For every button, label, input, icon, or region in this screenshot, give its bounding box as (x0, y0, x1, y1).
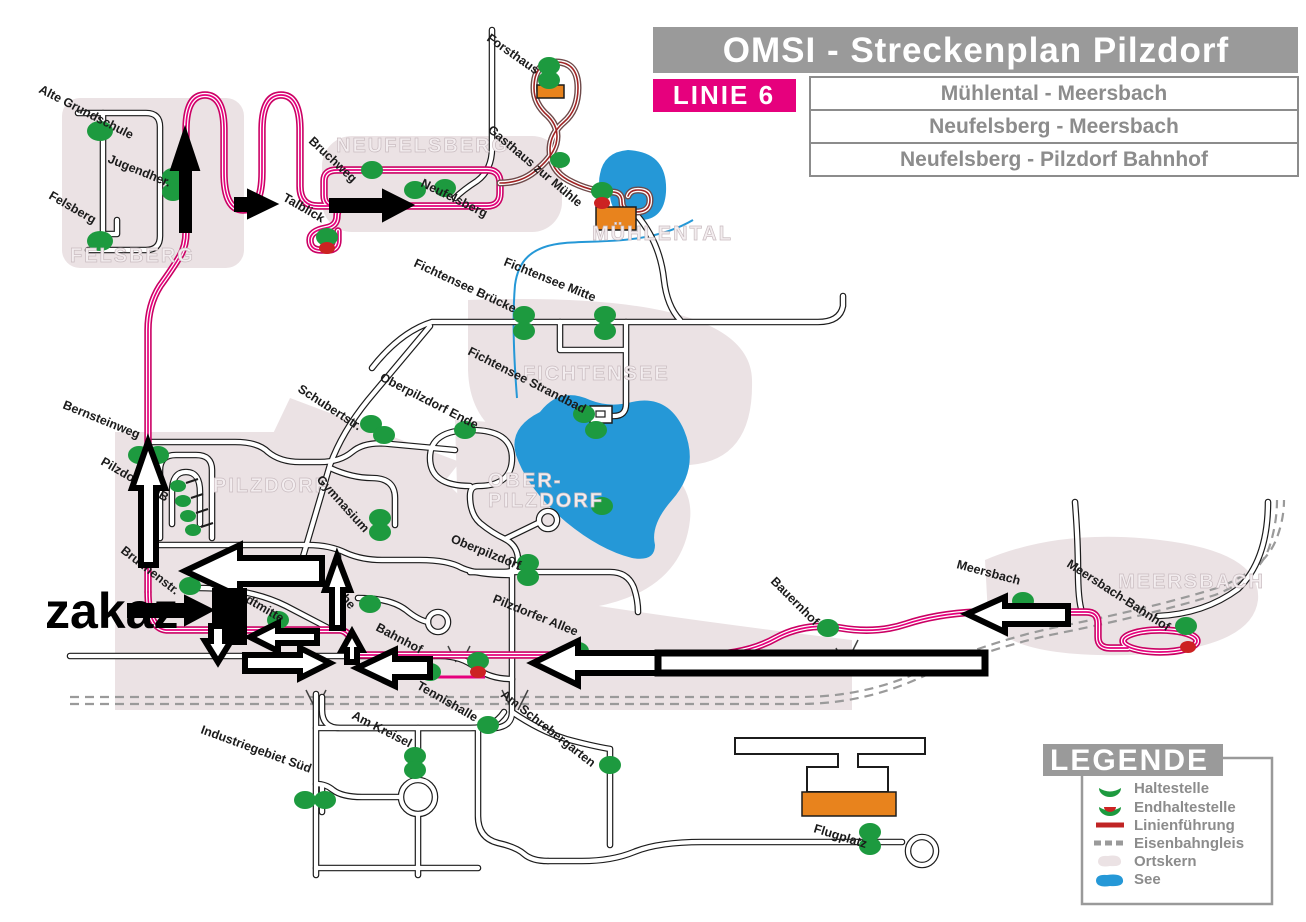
legend-label-haltestelle: Haltestelle (1134, 780, 1209, 797)
flugplatz-runway (735, 738, 925, 792)
ortskern-icon (1098, 856, 1121, 867)
strandbad-hut-window (596, 411, 605, 417)
stop-label-bernsteinweg: Bernsteinweg (61, 398, 142, 442)
stop-marker (404, 761, 426, 779)
stop-marker (517, 568, 539, 586)
stop-marker (599, 756, 621, 774)
flugplatz-terminal (802, 792, 896, 816)
terminal-marker-red (319, 242, 335, 254)
stop-marker (359, 595, 381, 613)
header: OMSI - Streckenplan Pilzdorf LINIE 6 Müh… (653, 27, 1298, 176)
legend: LEGENDE Haltestelle Endhaltestelle Linie… (1043, 744, 1272, 904)
area-label-felsberg: FELSBERG (70, 245, 195, 267)
terminal-marker-red (1180, 641, 1196, 653)
route-name-1: Mühlental - Meersbach (941, 82, 1167, 105)
terminal-marker-red (594, 197, 610, 209)
stop-marker (585, 421, 607, 439)
stop-marker (477, 716, 499, 734)
stop-marker (369, 523, 391, 541)
area-label-muehlental: MÜHLENTAL (592, 222, 733, 245)
stop-marker (513, 322, 535, 340)
area-label-pilzdorf: PILZDORF (213, 475, 329, 497)
area-label-meersbach: MEERSBACH (1118, 571, 1265, 593)
terminal-marker-red (470, 666, 486, 678)
arrow-left-allee-tail (658, 653, 985, 673)
stop-marker (817, 619, 839, 637)
stop-marker (594, 306, 616, 324)
route-name-2: Neufelsberg - Meersbach (929, 115, 1179, 138)
stop-marker (373, 426, 395, 444)
stop-marker (513, 306, 535, 324)
route-name-3: Neufelsberg - Pilzdorf Bahnhof (900, 148, 1209, 171)
legend-title: LEGENDE (1050, 744, 1209, 777)
terminal-marker-green (1175, 617, 1197, 635)
area-label-oberpilzdorf-1: OBER- (488, 470, 562, 492)
legend-label-ortskern: Ortskern (1134, 853, 1197, 870)
see-icon (1096, 875, 1123, 887)
zakaz-annotation: zakaz (45, 583, 178, 639)
stop-label-bauernhof: Bauernhof (768, 574, 823, 629)
legend-label-endhaltestelle: Endhaltestelle (1134, 799, 1236, 816)
streckenplan-page: FELSBERG NEUFELSBERG MÜHLENTAL FICHTENSE… (0, 0, 1306, 922)
legend-label-see: See (1134, 871, 1161, 888)
legend-label-eisenbahngleis: Eisenbahngleis (1134, 835, 1244, 852)
line-badge-label: LINIE 6 (673, 80, 775, 110)
stop-marker (594, 322, 616, 340)
stop-marker (538, 71, 560, 89)
stop-label-industriegebiet-sued: Industriegebiet Süd (199, 723, 313, 776)
stop-marker (294, 791, 316, 809)
area-label-oberpilzdorf-2: PILZDORF (488, 490, 604, 512)
legend-label-linienfuehrung: Linienführung (1134, 817, 1235, 834)
stop-label-flugplatz: Flugplatz (812, 821, 869, 850)
map-title: OMSI - Streckenplan Pilzdorf (723, 31, 1229, 70)
stop-marker (314, 791, 336, 809)
route-map: FELSBERG NEUFELSBERG MÜHLENTAL FICHTENSE… (0, 0, 1306, 922)
area-label-neufelsberg: NEUFELSBERG (336, 135, 509, 157)
stop-label-oberpilzdorf-ende: Oberpilzdorf Ende (378, 370, 481, 432)
stop-marker (361, 161, 383, 179)
stop-marker (550, 152, 570, 168)
